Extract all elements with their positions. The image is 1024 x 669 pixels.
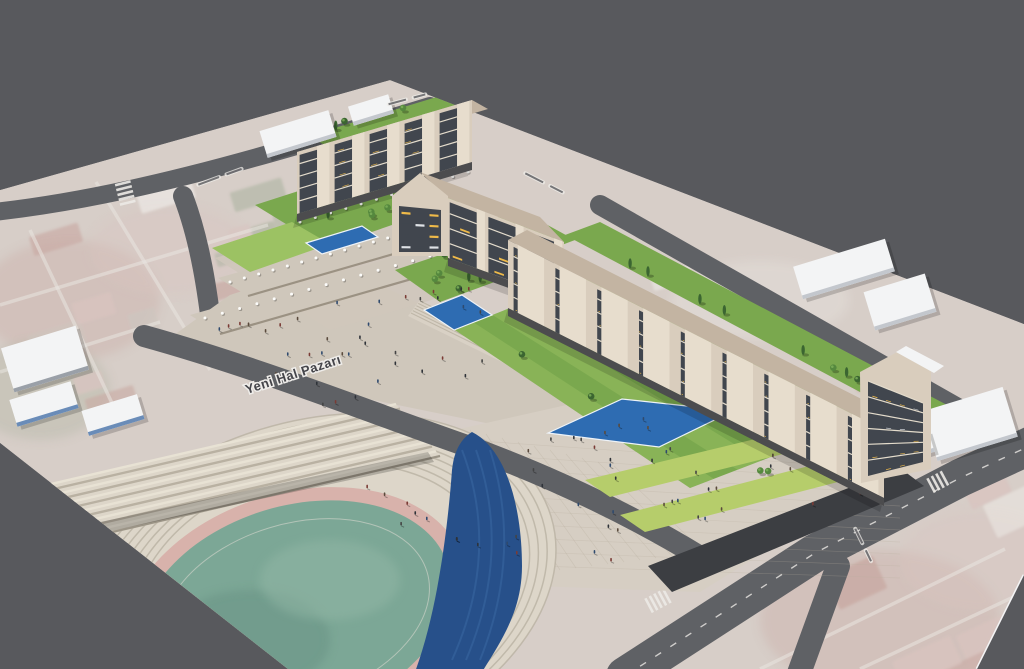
- masterplan-render: Yeni Hal Pazarı: [0, 0, 1024, 669]
- render-viewport: Yeni Hal Pazarı: [0, 0, 1024, 669]
